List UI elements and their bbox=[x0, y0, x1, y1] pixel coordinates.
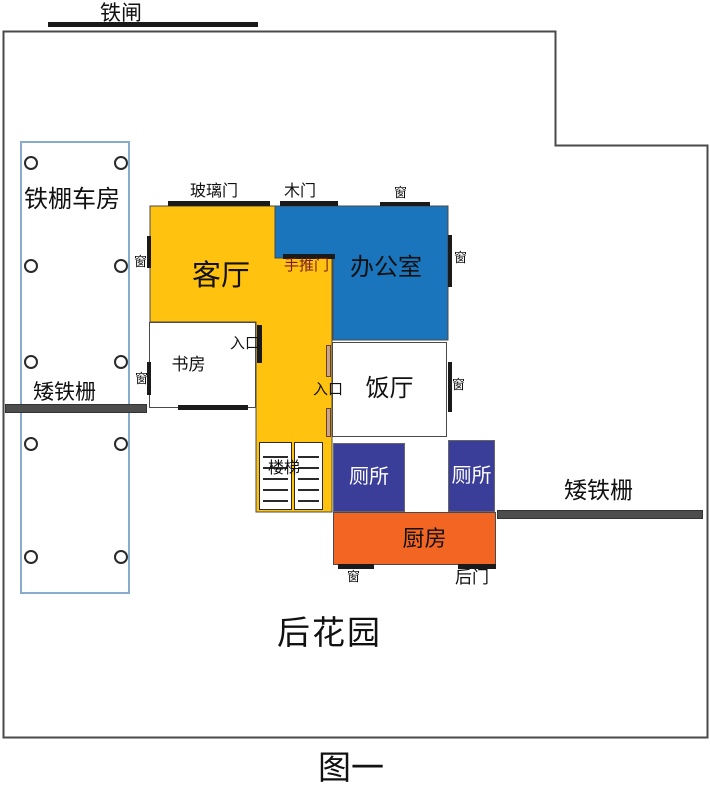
kitchen: 厨房 bbox=[333, 512, 496, 565]
toilet-left-label: 厕所 bbox=[349, 467, 389, 488]
glass-door-bar bbox=[168, 201, 270, 206]
kitchen-window-label: 窗 bbox=[347, 570, 360, 584]
stair-treads bbox=[298, 447, 319, 505]
stairs-label: 楼梯 bbox=[268, 461, 300, 478]
floor-plan: 铁闸 铁棚车房 矮铁栅 矮铁栅 书房 饭厅 厕所 厕所 厨房 客厅 办公室 楼梯 bbox=[0, 0, 710, 799]
glass-door-label: 玻璃门 bbox=[190, 184, 238, 201]
garage-post bbox=[24, 355, 38, 369]
study-label: 书房 bbox=[172, 356, 206, 374]
office-right-window-label: 窗 bbox=[454, 251, 467, 265]
living-room-label: 客厅 bbox=[192, 261, 250, 291]
fence-left-label: 矮铁栅 bbox=[33, 381, 96, 403]
dining-right-window-label: 窗 bbox=[452, 378, 465, 392]
office-label: 办公室 bbox=[350, 256, 422, 281]
garage-post bbox=[24, 550, 38, 564]
back-door-label: 后门 bbox=[455, 569, 489, 587]
gate-bar bbox=[48, 22, 258, 27]
study-entrance-label: 入口 bbox=[230, 337, 260, 353]
wood-door-bar bbox=[280, 201, 338, 206]
toilet-right: 厕所 bbox=[448, 440, 495, 512]
toilet-left: 厕所 bbox=[333, 443, 405, 512]
dining-entrance-label: 入口 bbox=[313, 383, 343, 399]
fence-right-bar bbox=[497, 510, 703, 519]
garden-label: 后花园 bbox=[277, 617, 382, 652]
office-top-window-bar bbox=[380, 202, 430, 206]
kitchen-label: 厨房 bbox=[402, 527, 446, 550]
left-wall-window-label-upper: 窗 bbox=[134, 255, 147, 269]
garage-post bbox=[114, 355, 128, 369]
toilet-right-label: 厕所 bbox=[452, 466, 492, 487]
dining-entrance-jamb bbox=[326, 408, 331, 437]
garage-post bbox=[24, 259, 38, 273]
dining-entrance-jamb bbox=[326, 345, 331, 377]
garage-post bbox=[114, 550, 128, 564]
study-bottom-bar bbox=[178, 405, 248, 410]
study-room: 书房 bbox=[149, 322, 256, 408]
fence-right-label: 矮铁栅 bbox=[564, 479, 633, 503]
wood-door-label: 木门 bbox=[284, 184, 316, 201]
figure-caption: 图一 bbox=[318, 752, 384, 787]
garage-post bbox=[114, 156, 128, 170]
garage-post bbox=[114, 259, 128, 273]
office-right-window-bar bbox=[448, 235, 452, 287]
left-wall-window-label-lower: 窗 bbox=[135, 372, 148, 386]
office-top-window-label: 窗 bbox=[394, 186, 407, 200]
push-door-label: 手推门 bbox=[284, 259, 329, 275]
garage-post bbox=[114, 437, 128, 451]
dining-room: 饭厅 bbox=[332, 342, 447, 437]
gate-label: 铁闸 bbox=[100, 2, 142, 24]
fence-left-bar bbox=[5, 404, 147, 413]
garage-post bbox=[24, 156, 38, 170]
dining-label: 饭厅 bbox=[366, 377, 414, 402]
garage-label: 铁棚车房 bbox=[24, 188, 120, 213]
garage-post bbox=[24, 437, 38, 451]
left-wall-window-bar-upper bbox=[147, 236, 151, 268]
